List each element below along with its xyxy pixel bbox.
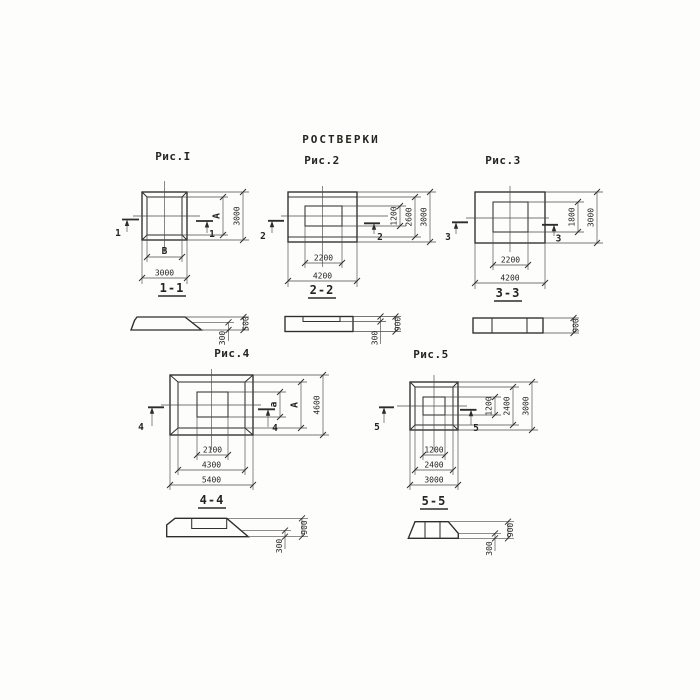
section-5-view: 900 300: [408, 519, 515, 556]
fig5-dim-inner-height: 1200: [485, 396, 494, 415]
fig5-dim-outer-width: 3000: [424, 476, 443, 485]
fig2-dim-inner-height: 1200: [390, 206, 399, 225]
fig5-dim-outer-height: 3000: [522, 396, 531, 415]
figure-5-dimensions: 1200 2400 3000 1200 2400 3000: [407, 379, 535, 488]
fig3-dim-outer-height: 3000: [587, 208, 596, 227]
section-2-total-height: 900: [394, 317, 403, 332]
figure-3-plan: [466, 186, 549, 252]
fig3-marker-inner: 3: [556, 234, 562, 245]
fig1-marker-left: 1: [115, 228, 121, 239]
figure-5-extension-lines: [410, 382, 538, 490]
fig1-dim-outer-height: 3000: [233, 206, 242, 225]
section-4-view: 900 300: [167, 515, 309, 553]
fig1-dim-inner-width: В: [162, 246, 168, 257]
figure-1-plan: [133, 181, 200, 252]
section-2-shape: [285, 317, 353, 332]
figure-2-section-markers: 2 2: [260, 221, 383, 243]
section-4-edge-height: 300: [275, 539, 284, 554]
fig4-dim-inner-width: 2100: [203, 446, 222, 455]
figure-2: Рис.2 1200 2600 3000 2200 4200 2 2 2-: [260, 154, 436, 345]
fig2-marker-inner: 2: [377, 232, 383, 243]
fig2-dim-outer-height: 3000: [420, 207, 429, 226]
section-2-view: 900 300: [285, 314, 403, 346]
fig2-dim-inner-width: 2200: [314, 254, 333, 263]
figure-3-dimensions: 1800 3000 2200 4200: [472, 189, 600, 286]
fig1-marker-inner: 1: [209, 229, 215, 240]
fig4-dim-inner-height: а: [269, 401, 280, 407]
fig3-dim-inner-height: 1800: [568, 207, 577, 226]
figure-3-extension-lines: [475, 192, 603, 289]
fig4-dim-mid-height: А: [290, 402, 301, 408]
fig3-inner-contour: [493, 202, 528, 232]
fig4-dim-outer-width: 5400: [202, 476, 221, 485]
section-4-shape: [167, 518, 249, 536]
fig2-dim-outer-width: 4200: [313, 272, 332, 281]
figure-5-plan: [397, 375, 467, 452]
section-1-title: 1-1: [160, 281, 185, 295]
section-1-edge-height: 300: [218, 331, 227, 346]
figure-4: Рис.4 а А 4600 2100 4300 5400 4 4: [138, 347, 329, 553]
fig3-dim-outer-width: 4200: [500, 274, 519, 283]
figure-1-caption: Рис.I: [155, 150, 191, 163]
section-4-title: 4-4: [200, 493, 225, 507]
section-2-edge-height: 300: [371, 331, 380, 346]
figure-4-caption: Рис.4: [214, 347, 250, 360]
scanned-drawing-sheet: РОСТВЕРКИ Рис.I А 3000 В 3000 1 1: [0, 0, 700, 700]
fig1-dim-outer-width: 3000: [155, 269, 174, 278]
fig4-dim-mid-width: 4300: [202, 461, 221, 470]
section-1-total-height: 500: [242, 316, 251, 331]
grillage-drawing-canvas: РОСТВЕРКИ Рис.I А 3000 В 3000 1 1: [0, 0, 700, 700]
fig4-inner-contour: [197, 392, 228, 417]
section-5-shape: [408, 522, 458, 539]
figure-3: Рис.3 1800 3000 2200 4200 3 3 3-3: [445, 154, 603, 336]
figure-1: Рис.I А 3000 В 3000 1 1 1-1: [115, 150, 250, 345]
section-5-edge-height: 300: [485, 541, 494, 556]
fig3-dim-inner-width: 2200: [501, 256, 520, 265]
fig5-dim-mid-width: 2400: [424, 461, 443, 470]
section-3-title: 3-3: [496, 286, 521, 300]
fig3-marker-left: 3: [445, 232, 451, 243]
section-4-total-height: 900: [300, 520, 309, 535]
fig4-marker-left: 4: [138, 422, 144, 433]
section-5-total-height: 900: [506, 523, 515, 538]
figure-5: Рис.5 1200 2400 3000 1200 2400 3000 5: [374, 348, 538, 556]
fig4-marker-inner: 4: [272, 423, 278, 434]
figure-4-section-markers: 4 4: [138, 407, 278, 434]
section-1-view: 500 300: [131, 314, 251, 345]
figure-1-section-markers: 1 1: [115, 220, 215, 241]
fig5-dim-mid-height: 2400: [503, 396, 512, 415]
figure-2-caption: Рис.2: [304, 154, 340, 167]
section-3-view: 900: [473, 315, 581, 336]
section-2-title: 2-2: [310, 283, 335, 297]
figure-3-section-markers: 3 3: [445, 222, 562, 244]
fig5-marker-left: 5: [374, 422, 380, 433]
drawing-title: РОСТВЕРКИ: [302, 133, 380, 146]
fig5-dim-inner-width: 1200: [424, 446, 443, 455]
figure-2-plan: [281, 186, 388, 267]
fig4-dim-outer-height: 4600: [313, 395, 322, 414]
section-5-title: 5-5: [422, 494, 447, 508]
figure-4-plan: [161, 369, 261, 450]
fig5-marker-inner: 5: [473, 423, 479, 434]
section-3-shape: [473, 318, 543, 333]
section-3-total-height: 900: [572, 318, 581, 333]
figure-5-caption: Рис.5: [413, 348, 449, 361]
fig1-dim-inner-height: А: [212, 213, 223, 219]
figure-3-caption: Рис.3: [485, 154, 521, 167]
fig2-dim-mid-height: 2600: [405, 207, 414, 226]
fig2-marker-left: 2: [260, 231, 266, 242]
